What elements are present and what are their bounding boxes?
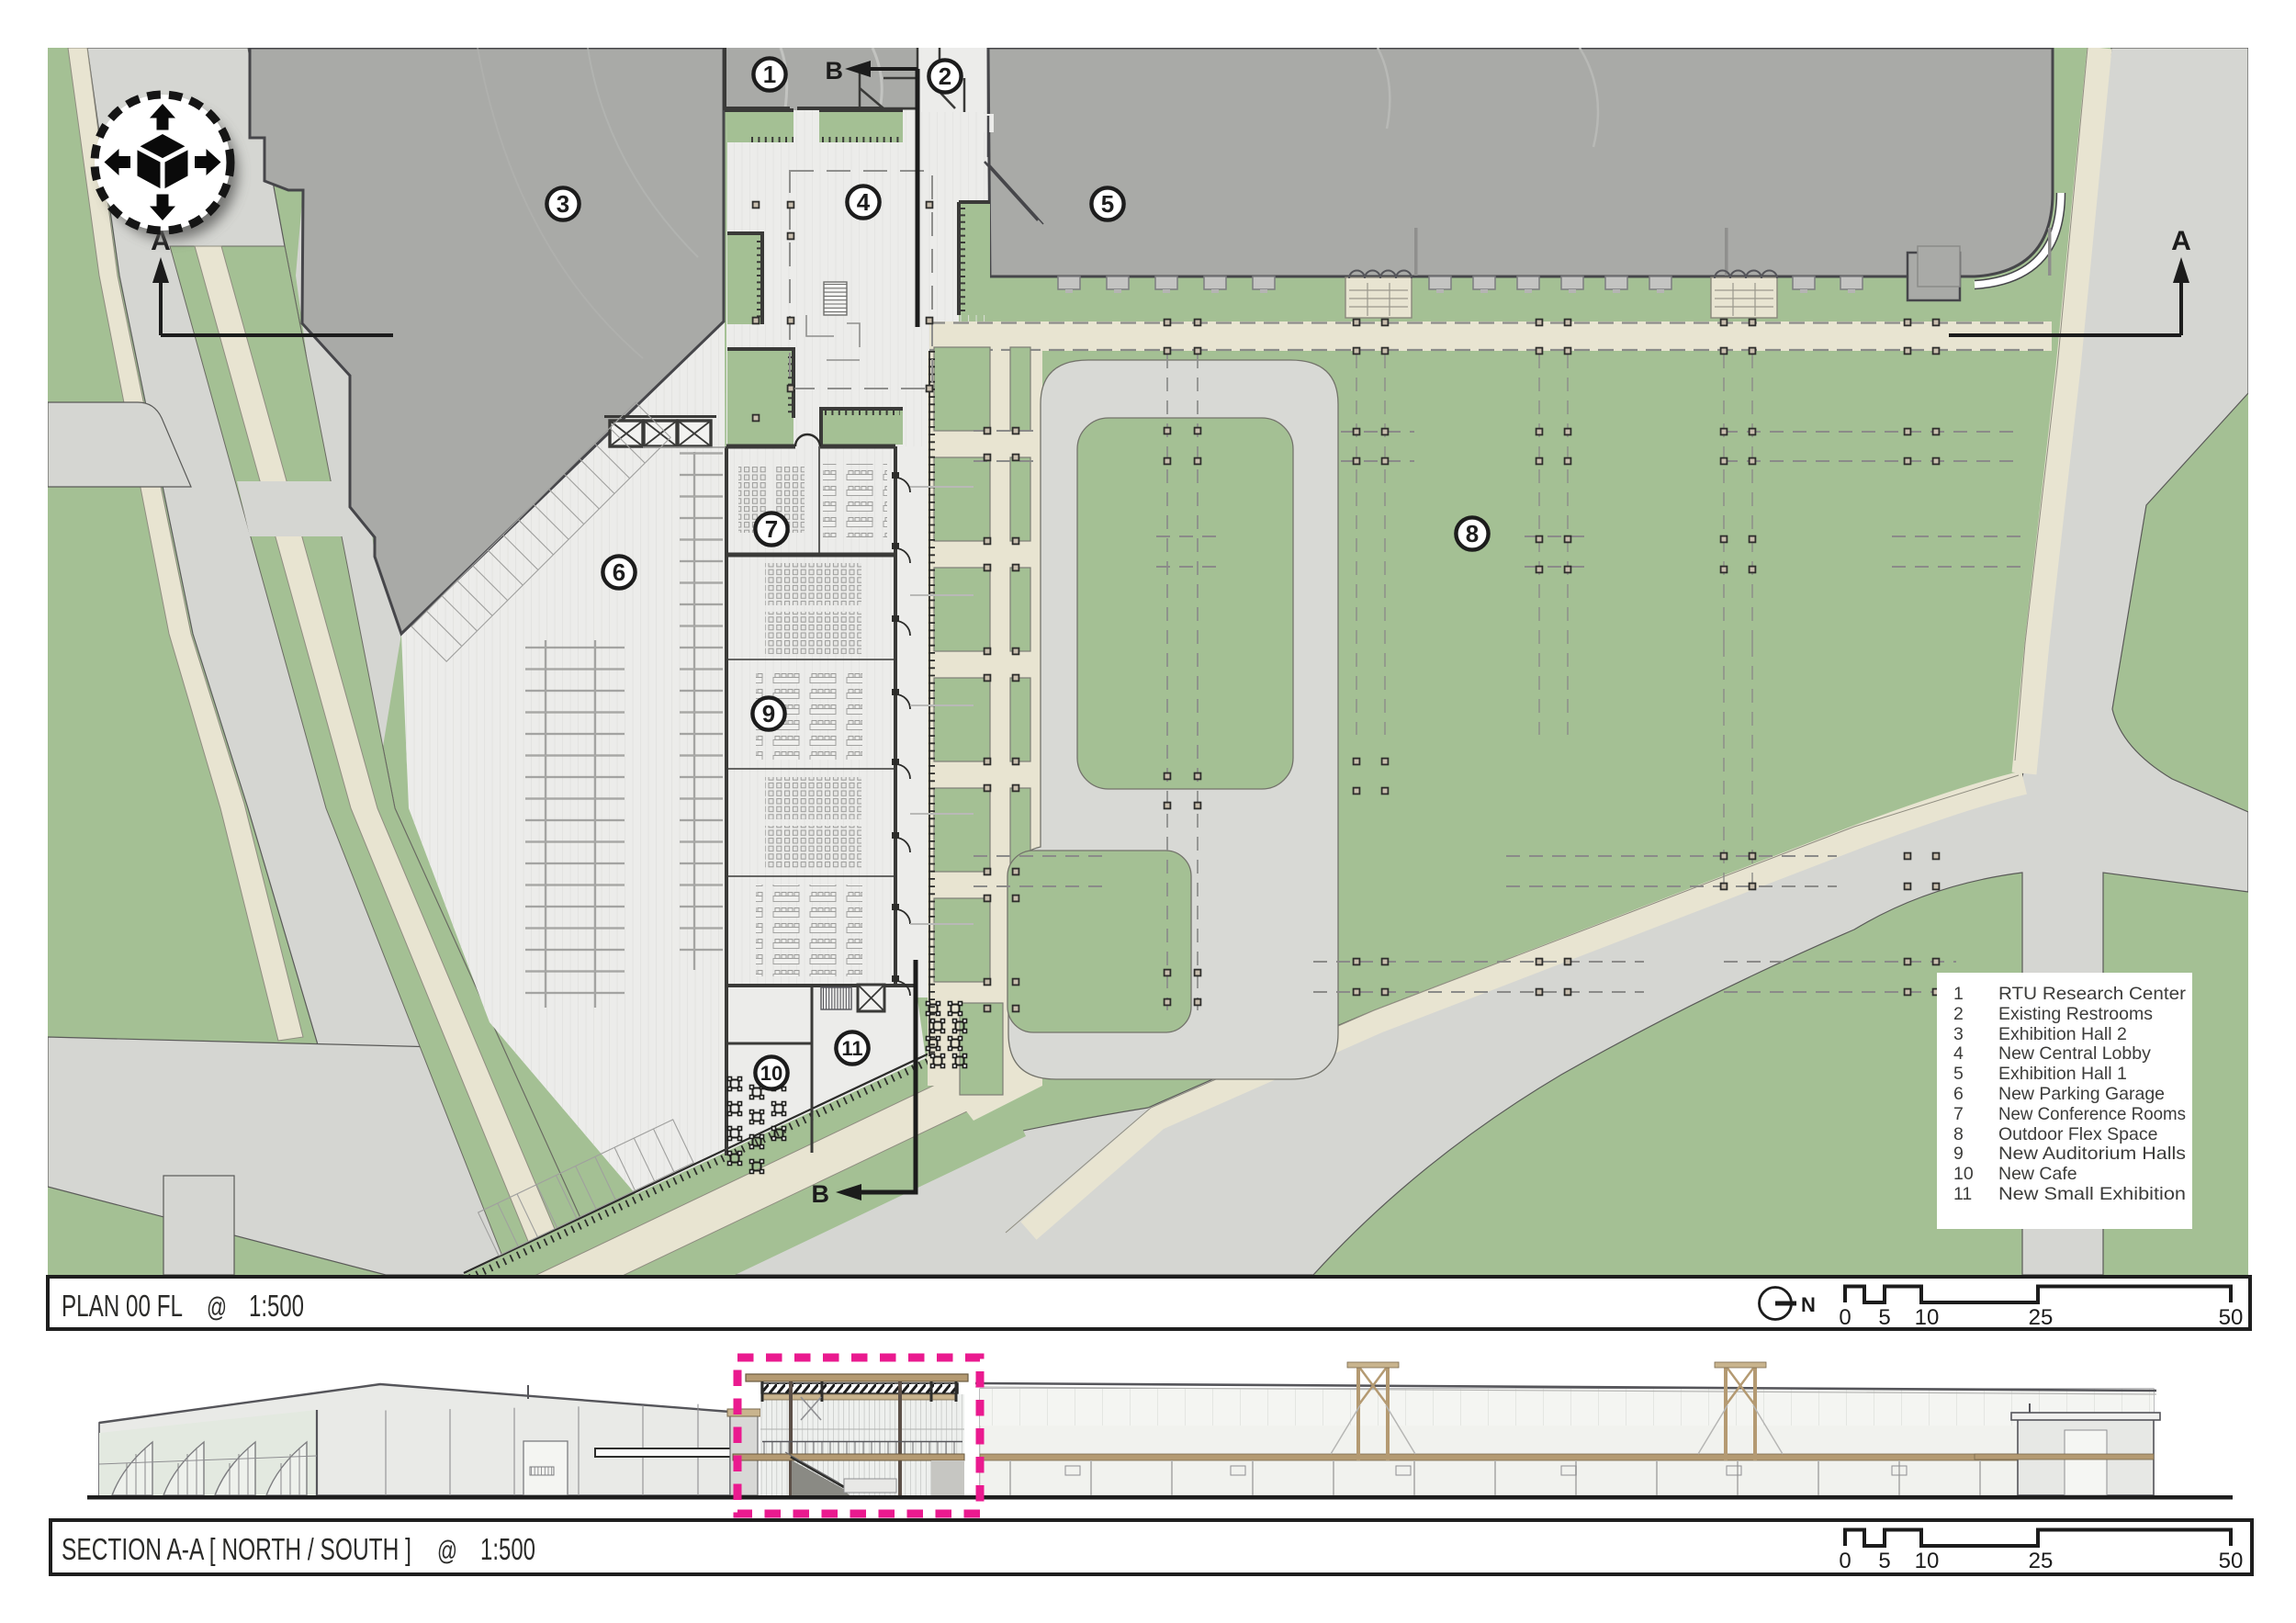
svg-text:A: A (2171, 226, 2191, 256)
svg-text:1:500: 1:500 (480, 1532, 535, 1566)
svg-text:1:500: 1:500 (249, 1289, 304, 1323)
svg-text:N: N (1801, 1293, 1816, 1316)
svg-text:50: 50 (2219, 1549, 2244, 1573)
svg-text:0: 0 (1839, 1549, 1851, 1573)
svg-text:New Small Exhibition: New Small Exhibition (1998, 1184, 2186, 1204)
svg-text:RTU Research Center: RTU Research Center (1998, 984, 2187, 1004)
svg-text:4: 4 (1953, 1043, 1964, 1064)
svg-text:8: 8 (1466, 520, 1479, 547)
svg-text:5: 5 (1953, 1064, 1964, 1084)
svg-text:0: 0 (1839, 1305, 1851, 1330)
svg-text:25: 25 (2029, 1305, 2054, 1330)
svg-text:SECTION A-A [ NORTH / SOUTH ]: SECTION A-A [ NORTH / SOUTH ] (62, 1532, 411, 1566)
svg-text:1: 1 (1953, 984, 1964, 1004)
svg-text:PLAN 00 FL: PLAN 00 FL (62, 1289, 183, 1323)
svg-text:8: 8 (1953, 1124, 1964, 1144)
svg-text:Exhibition Hall 1: Exhibition Hall 1 (1998, 1064, 2127, 1084)
svg-text:2: 2 (1953, 1004, 1964, 1024)
svg-text:3: 3 (557, 190, 569, 218)
svg-text:@: @ (207, 1292, 227, 1323)
svg-text:Outdoor Flex Space: Outdoor Flex Space (1998, 1124, 2157, 1144)
svg-text:7: 7 (1953, 1104, 1964, 1124)
svg-text:New Auditorium Halls: New Auditorium Halls (1998, 1144, 2186, 1164)
svg-text:6: 6 (1953, 1084, 1964, 1104)
svg-text:1: 1 (763, 61, 776, 88)
svg-text:New Conference Rooms: New Conference Rooms (1998, 1104, 2186, 1124)
svg-text:7: 7 (765, 515, 778, 543)
svg-text:6: 6 (613, 558, 625, 586)
svg-text:3: 3 (1953, 1024, 1964, 1044)
svg-text:5: 5 (1101, 190, 1114, 218)
svg-text:50: 50 (2219, 1305, 2244, 1330)
svg-text:New Parking Garage: New Parking Garage (1998, 1084, 2165, 1104)
svg-text:11: 11 (841, 1037, 862, 1060)
svg-text:10: 10 (760, 1062, 782, 1085)
svg-text:10: 10 (1953, 1164, 1974, 1184)
svg-text:9: 9 (762, 700, 775, 727)
svg-text:11: 11 (1953, 1184, 1972, 1204)
svg-text:New Central Lobby: New Central Lobby (1998, 1043, 2151, 1064)
svg-text:@: @ (437, 1536, 457, 1566)
svg-text:9: 9 (1953, 1144, 1964, 1164)
svg-text:Exhibition Hall 2: Exhibition Hall 2 (1998, 1024, 2127, 1044)
svg-text:5: 5 (1878, 1305, 1890, 1330)
svg-text:New Cafe: New Cafe (1998, 1164, 2077, 1184)
svg-text:2: 2 (939, 62, 951, 90)
svg-text:B: B (812, 1180, 830, 1208)
svg-text:5: 5 (1878, 1549, 1890, 1573)
svg-text:Existing Restrooms: Existing Restrooms (1998, 1004, 2153, 1024)
svg-text:25: 25 (2029, 1549, 2054, 1573)
svg-text:4: 4 (857, 188, 871, 216)
svg-text:10: 10 (1915, 1305, 1940, 1330)
svg-text:B: B (826, 57, 844, 85)
svg-text:10: 10 (1915, 1549, 1940, 1573)
